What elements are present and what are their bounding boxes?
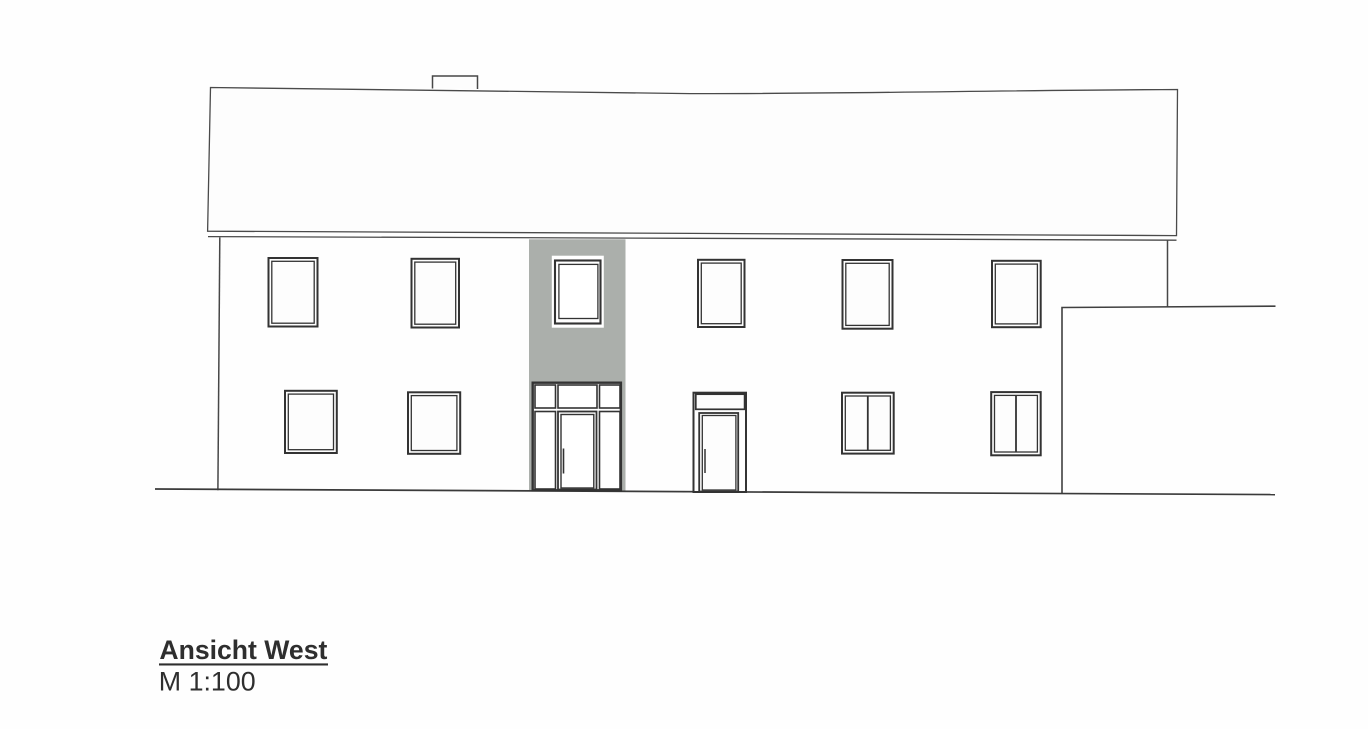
svg-text:M 1:100: M 1:100 [159, 667, 256, 697]
svg-text:Ansicht West: Ansicht West [159, 635, 327, 665]
